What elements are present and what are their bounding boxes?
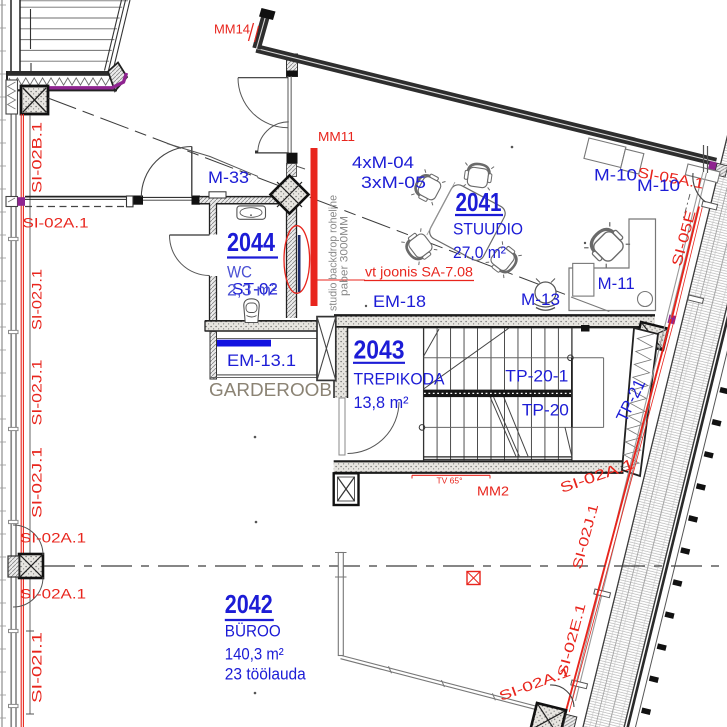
svg-text:3xM-05: 3xM-05 (361, 174, 426, 192)
svg-text:SI-02A.1: SI-02A.1 (20, 531, 86, 546)
svg-text:4xM-04: 4xM-04 (352, 154, 414, 172)
svg-text:27,0 m²: 27,0 m² (453, 244, 506, 262)
svg-text:2,3 m²: 2,3 m² (227, 282, 278, 300)
svg-text:140,3 m²: 140,3 m² (225, 646, 284, 664)
svg-text:TREPIKODA: TREPIKODA (354, 371, 445, 389)
svg-text:MM11: MM11 (318, 129, 355, 144)
svg-text:2043: 2043 (354, 335, 405, 365)
svg-text:vt joonis SA-7.08: vt joonis SA-7.08 (365, 265, 473, 280)
svg-text:SI-02I.1: SI-02I.1 (30, 632, 45, 703)
svg-text:2044: 2044 (227, 227, 275, 257)
svg-text:M-10: M-10 (637, 177, 680, 195)
svg-text:WC: WC (227, 264, 252, 282)
svg-text:MM14: MM14 (214, 22, 250, 37)
svg-text:SI-02J.1: SI-02J.1 (30, 447, 45, 518)
svg-text:M-10: M-10 (594, 167, 637, 185)
svg-text:23 töölauda: 23 töölauda (225, 666, 307, 684)
svg-text:TP-20-1: TP-20-1 (505, 368, 568, 386)
svg-text:SI-02A.1: SI-02A.1 (23, 216, 89, 231)
svg-text:TV 65°: TV 65° (437, 476, 463, 486)
svg-text:TP-20: TP-20 (522, 402, 569, 420)
svg-text:SI-02J.1: SI-02J.1 (30, 269, 45, 330)
svg-text:EM-13.1: EM-13.1 (227, 352, 296, 370)
svg-text:SI-02B.1: SI-02B.1 (30, 122, 45, 193)
svg-text:GARDEROOB: GARDEROOB (209, 379, 332, 400)
svg-text:M-13: M-13 (521, 291, 560, 309)
svg-text:M-33: M-33 (208, 169, 249, 187)
svg-text:SI-02J.1: SI-02J.1 (30, 360, 45, 426)
svg-text:EM-18: EM-18 (373, 293, 426, 311)
svg-text:2042: 2042 (225, 589, 273, 619)
svg-text:BÜROO: BÜROO (225, 623, 281, 641)
svg-text:MM2: MM2 (477, 484, 509, 499)
svg-text:2041: 2041 (456, 187, 502, 217)
svg-text:STUUDIO: STUUDIO (453, 221, 523, 239)
svg-text:paber 3000MM: paber 3000MM (339, 216, 351, 296)
svg-text:M-11: M-11 (598, 275, 635, 293)
svg-text:SI-02A.1: SI-02A.1 (20, 587, 86, 602)
svg-text:13,8 m²: 13,8 m² (354, 394, 409, 412)
